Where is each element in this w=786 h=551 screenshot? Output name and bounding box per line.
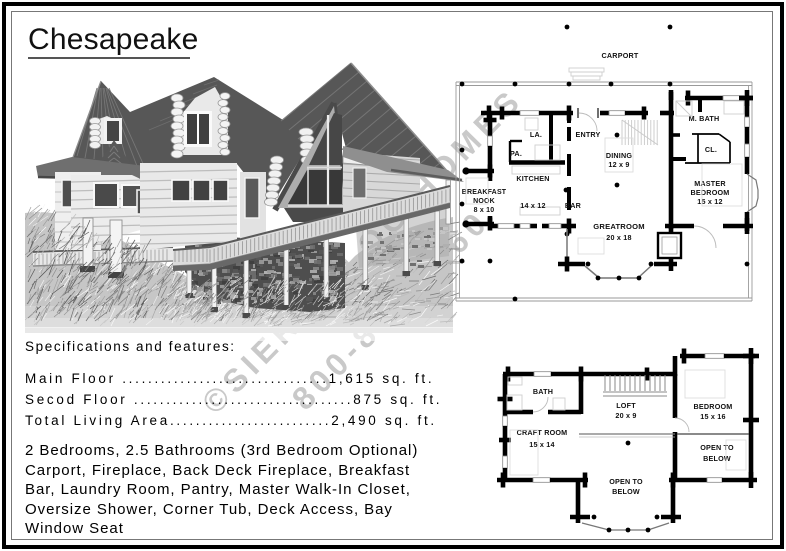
svg-text:20 x 18: 20 x 18 [606,233,631,242]
svg-text:15 x 16: 15 x 16 [700,412,725,421]
svg-text:OPEN TO: OPEN TO [609,477,643,486]
svg-text:12 x 9: 12 x 9 [608,160,629,169]
svg-text:BELOW: BELOW [612,487,640,496]
svg-text:BREAKFAST: BREAKFAST [462,189,507,196]
svg-text:8 x 10: 8 x 10 [474,207,495,214]
svg-text:M. BATH: M. BATH [689,114,720,123]
svg-text:BELOW: BELOW [703,454,731,463]
svg-text:15 x 12: 15 x 12 [697,197,722,206]
svg-text:OPEN TO: OPEN TO [700,443,734,452]
svg-text:PA.: PA. [510,149,522,158]
svg-text:15 x 14: 15 x 14 [529,440,554,449]
svg-text:CRAFT ROOM: CRAFT ROOM [517,428,568,437]
svg-text:DINING: DINING [606,151,633,160]
svg-text:BEDROOM: BEDROOM [691,188,730,197]
svg-text:LA.: LA. [530,130,542,139]
svg-text:BEDROOM: BEDROOM [694,402,733,411]
svg-text:ENTRY: ENTRY [575,130,600,139]
svg-text:GREATROOM: GREATROOM [593,222,644,231]
svg-text:LOFT: LOFT [616,401,636,410]
svg-text:20 x 9: 20 x 9 [615,411,636,420]
svg-text:MASTER: MASTER [694,179,726,188]
svg-text:BATH: BATH [533,387,553,396]
svg-text:KITCHEN: KITCHEN [516,174,549,183]
svg-text:14 x 12: 14 x 12 [520,201,545,210]
svg-text:BAR: BAR [565,201,582,210]
svg-text:CL.: CL. [705,145,717,154]
svg-text:CARPORT: CARPORT [602,51,639,60]
